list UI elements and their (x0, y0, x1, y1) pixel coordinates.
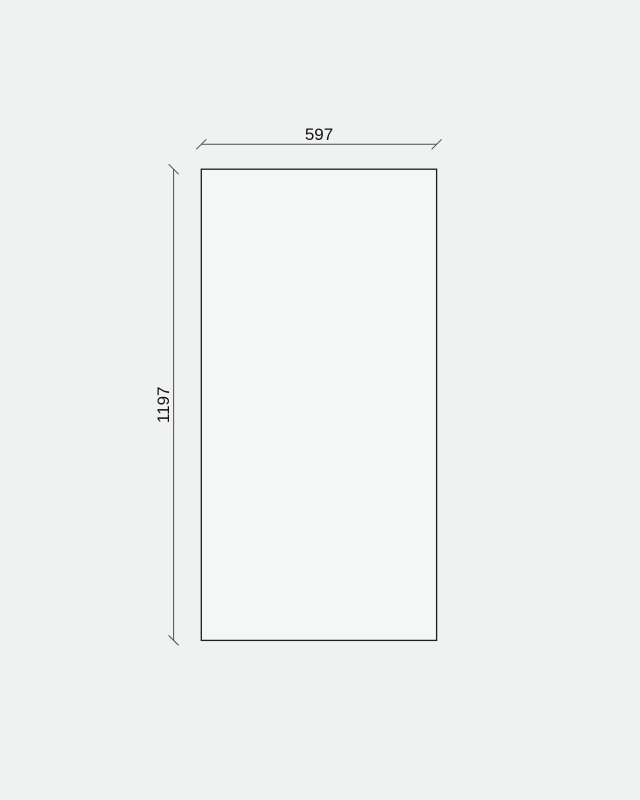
svg-text:1197: 1197 (154, 387, 173, 424)
svg-text:597: 597 (305, 125, 333, 144)
